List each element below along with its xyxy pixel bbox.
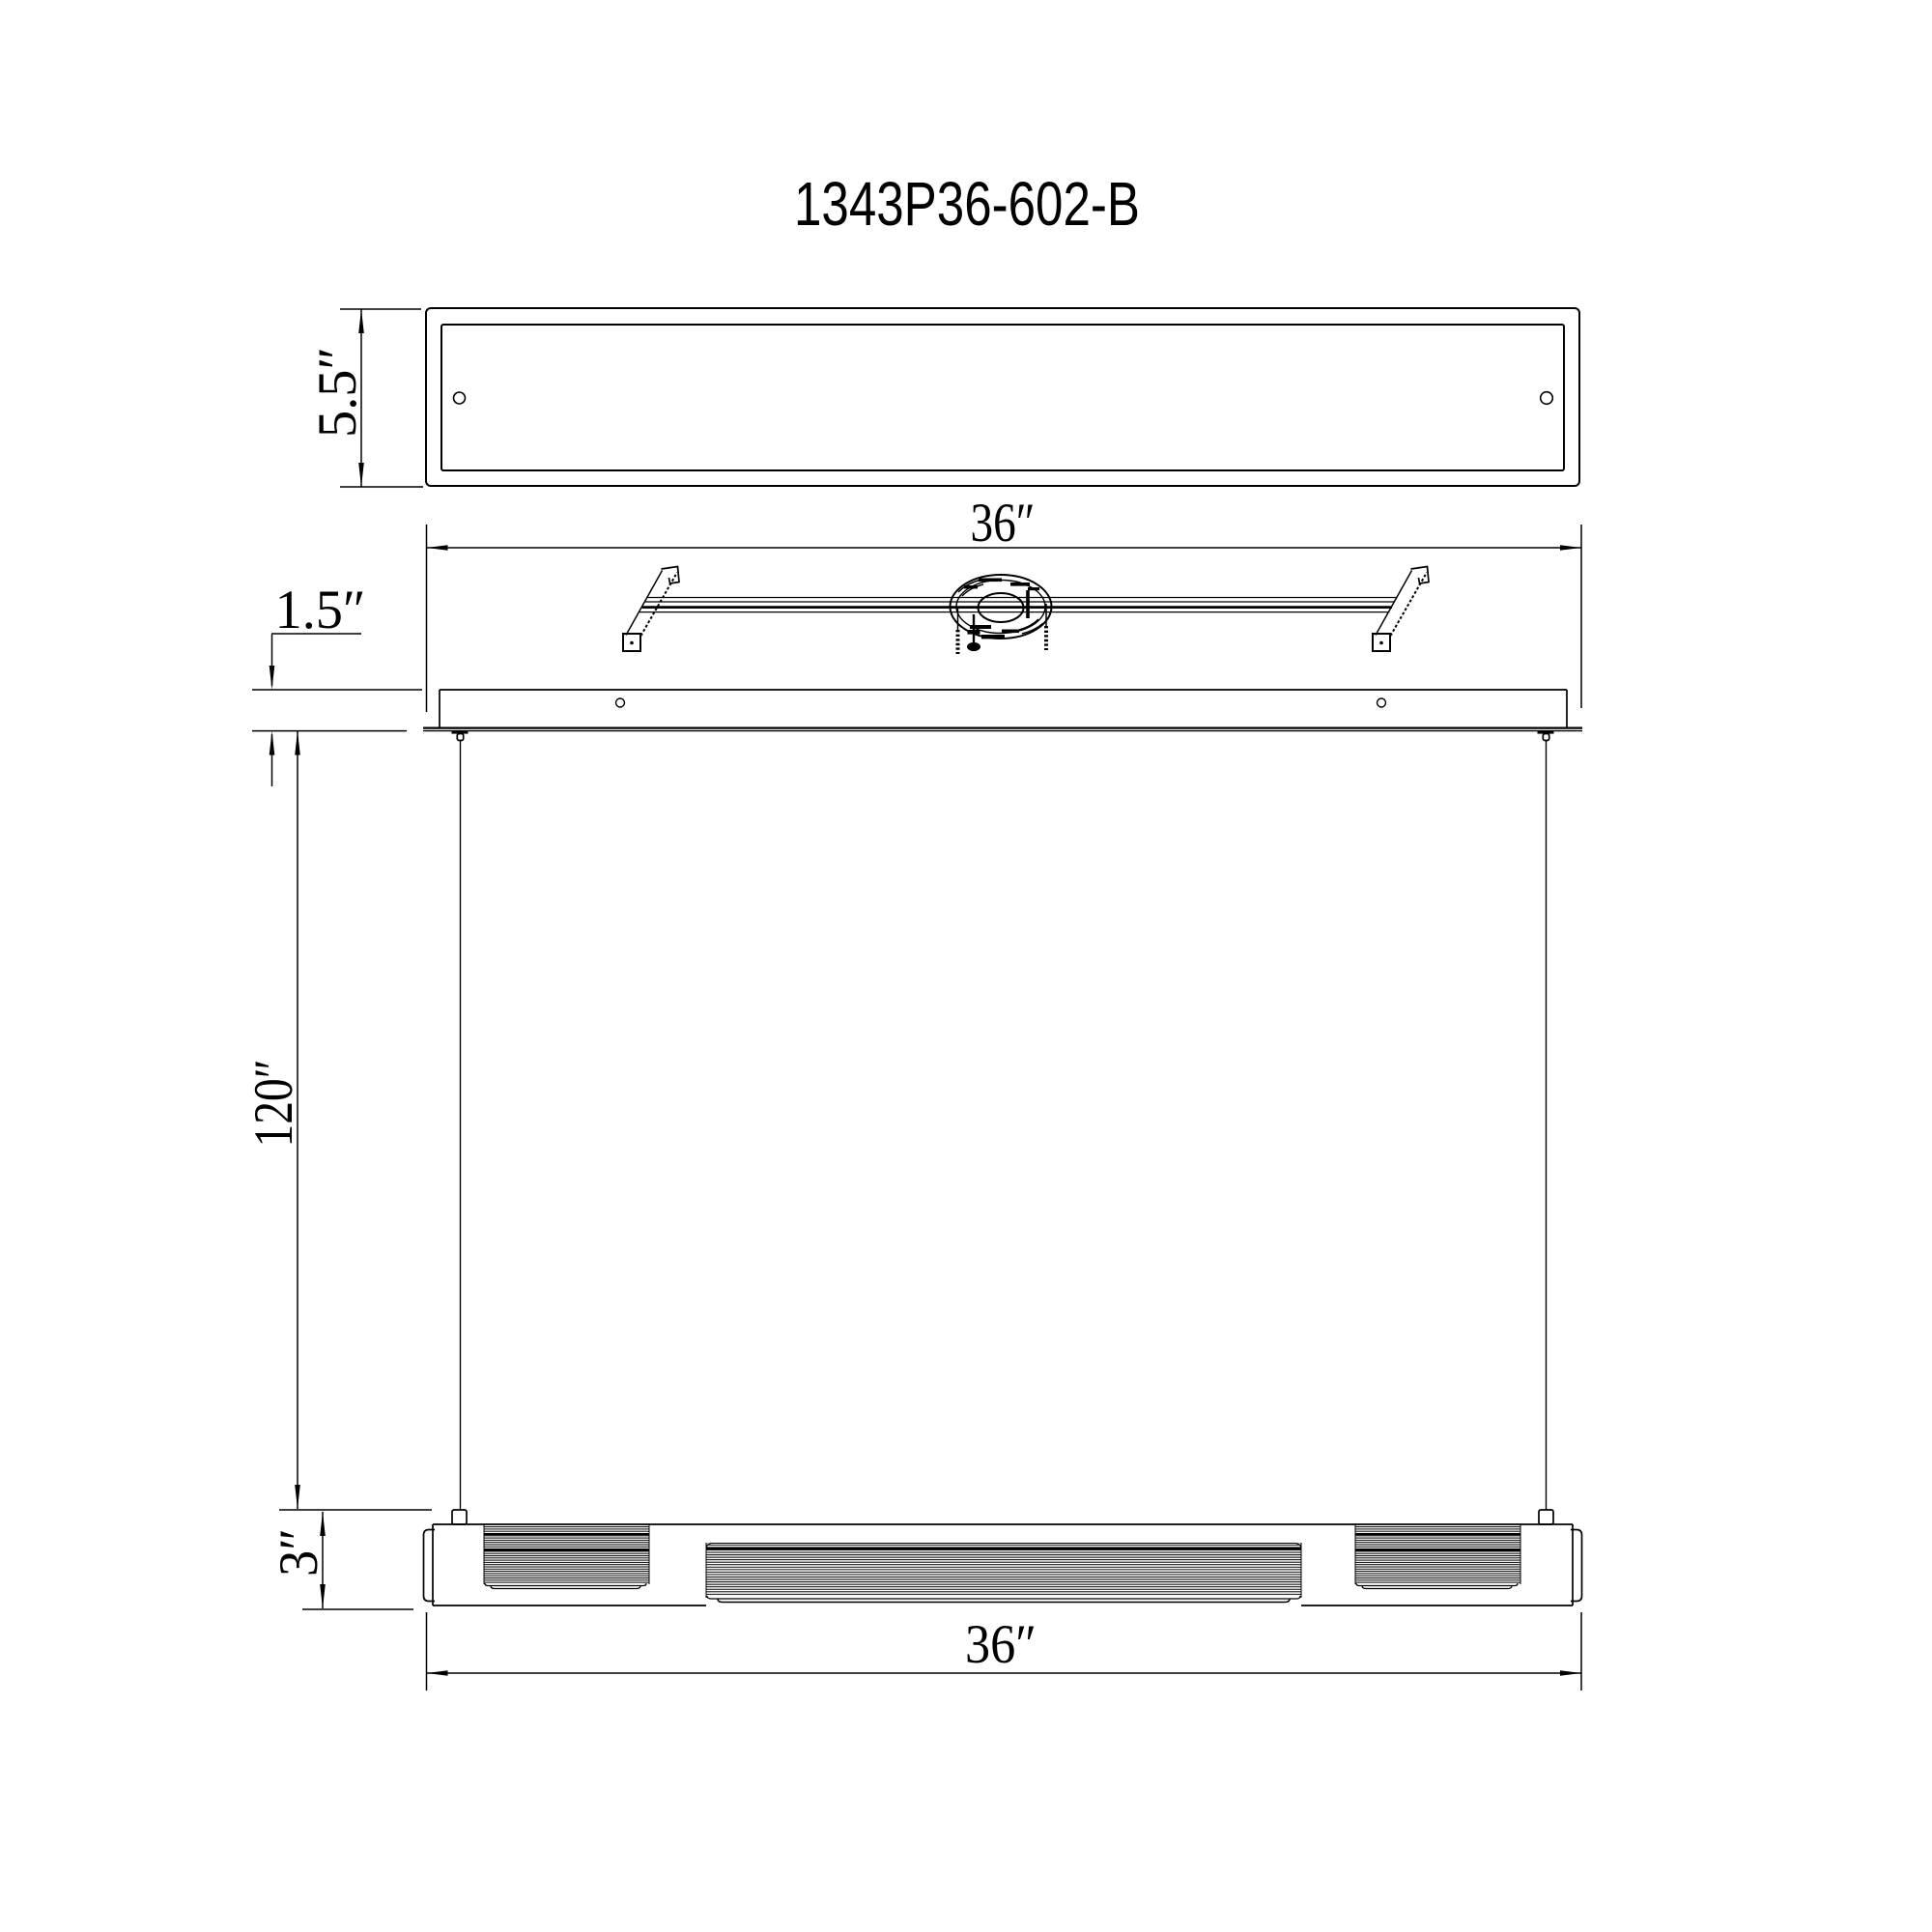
svg-text:36″: 36″ bbox=[971, 493, 1036, 554]
svg-text:1343P36-602-B: 1343P36-602-B bbox=[794, 169, 1140, 239]
svg-text:36″: 36″ bbox=[965, 1614, 1037, 1675]
svg-text:3″: 3″ bbox=[269, 1528, 329, 1577]
svg-text:120″: 120″ bbox=[243, 1060, 304, 1148]
svg-text:5.5″: 5.5″ bbox=[307, 347, 368, 438]
svg-text:1.5″: 1.5″ bbox=[275, 580, 366, 640]
